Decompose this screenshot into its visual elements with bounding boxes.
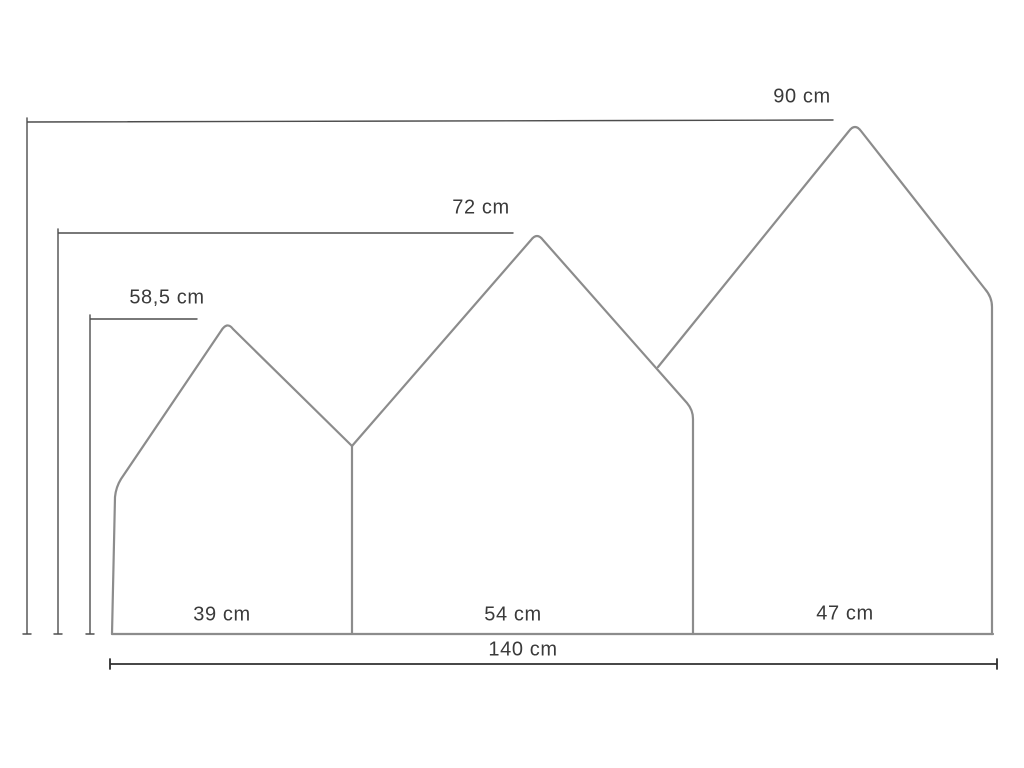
- width-label-middle-house: 54 cm: [484, 604, 541, 627]
- height-label-right-house: 90 cm: [773, 86, 830, 109]
- width-label-left-house: 39 cm: [193, 604, 250, 627]
- height-label-middle-house: 72 cm: [452, 197, 509, 220]
- right-house-outline: [658, 127, 992, 634]
- height-dim-72-line: [54, 229, 513, 634]
- height-dim-585-line: [86, 315, 197, 634]
- house-outlines-group: [112, 127, 993, 634]
- height-label-left-house: 58,5 cm: [129, 287, 204, 310]
- height-dim-90-line: [23, 118, 833, 634]
- total-width-label: 140 cm: [488, 639, 557, 662]
- middle-house-outline: [352, 236, 693, 634]
- dimension-diagram: 90 cm 72 cm 58,5 cm 39 cm 54 cm 47 cm 14…: [0, 0, 1024, 768]
- height-dimension-lines-group: [23, 118, 833, 634]
- left-house-outline: [112, 325, 352, 634]
- width-label-right-house: 47 cm: [816, 603, 873, 626]
